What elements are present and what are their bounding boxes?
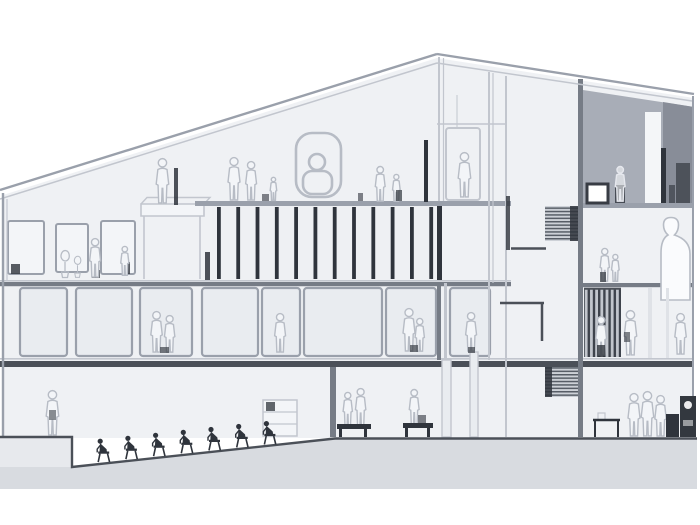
person-sketch: [246, 162, 257, 201]
dark-object: [410, 345, 418, 352]
slat-backing: [212, 206, 440, 280]
window-panel: [20, 288, 67, 356]
person-sketch: [409, 389, 419, 424]
slat: [352, 207, 356, 279]
person-sketch: [612, 254, 620, 281]
floor-slab-mid: [0, 282, 511, 286]
slat-end-column: [437, 206, 442, 280]
slat: [314, 207, 318, 279]
atrium-column: [442, 360, 451, 437]
white-column: [645, 112, 661, 203]
stair-flight-lower: [545, 367, 578, 397]
person-sketch: [343, 392, 352, 425]
column-stub: [205, 252, 210, 280]
section-canvas: [0, 0, 700, 525]
person-sketch: [90, 239, 101, 278]
slat: [391, 207, 395, 279]
window-panel-row: [0, 286, 511, 357]
floor-slab-lower: [0, 361, 694, 367]
column: [330, 367, 336, 437]
slat: [333, 207, 337, 279]
tv-screen: [587, 184, 608, 203]
slat: [294, 207, 298, 279]
dark-object: [160, 347, 169, 353]
window-panel: [76, 288, 132, 356]
ramp-seated-figure: [125, 436, 137, 460]
shaded-gallery: [583, 90, 694, 203]
dark-bar: [424, 140, 428, 202]
easel-panels: [8, 221, 135, 274]
dark-object: [396, 190, 402, 201]
atrium-column: [470, 352, 478, 437]
window-panel: [304, 288, 382, 356]
core-wall: [578, 79, 583, 437]
dark-bar: [661, 148, 666, 203]
person-sketch: [375, 166, 385, 201]
person-sketch: [615, 166, 625, 201]
floor-slab-top: [195, 201, 511, 206]
easel-panel: [56, 224, 88, 272]
slat: [275, 207, 279, 279]
bag-sketch: [262, 194, 269, 201]
dark-cabinet: [676, 163, 690, 203]
slat: [410, 207, 414, 279]
dark-object: [358, 193, 363, 201]
slat: [256, 207, 260, 279]
dark-object: [600, 272, 606, 282]
dark-object: [624, 332, 630, 342]
sunken-pit: [0, 438, 72, 467]
person-sketch: [466, 313, 477, 352]
dark-object: [468, 347, 475, 353]
dark-object: [11, 264, 20, 274]
chair-back: [174, 168, 178, 205]
slat: [371, 207, 375, 279]
stair-flight-upper: [545, 206, 578, 241]
slat: [217, 207, 221, 279]
dark-object: [597, 345, 605, 357]
dark-object: [669, 185, 675, 203]
architectural-section-drawing: [0, 0, 700, 525]
slat: [429, 207, 433, 279]
person-sketch: [275, 314, 286, 353]
slat: [236, 207, 240, 279]
person-sketch: [270, 177, 277, 200]
ramp-seated-figure: [97, 439, 109, 463]
dark-object: [49, 410, 56, 420]
window-panel: [202, 288, 258, 356]
person-sketch: [164, 316, 174, 353]
person-sketch: [121, 246, 129, 275]
person-sketch: [355, 389, 365, 426]
